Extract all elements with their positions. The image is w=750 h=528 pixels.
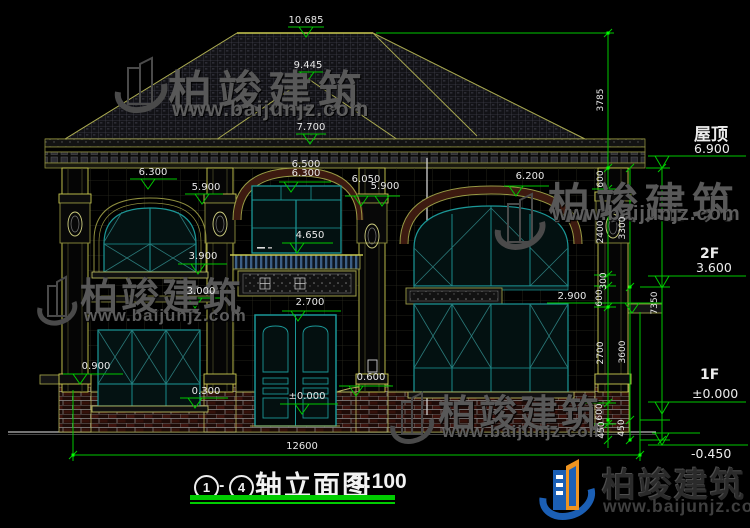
- dim-left-low: 0.300: [192, 386, 221, 397]
- cornice-band: [45, 139, 645, 168]
- watermark-logo-icon: [386, 388, 436, 450]
- dim-balcony: 4.650: [296, 230, 325, 241]
- dim-door-floor: ±0.000: [288, 391, 325, 402]
- dim-door-top: 2.700: [296, 297, 325, 308]
- title-underline-thick: [190, 495, 395, 500]
- chain-600a: 600: [596, 170, 606, 187]
- chain-2700: 2700: [596, 342, 606, 365]
- dim-right-arch: 6.200: [516, 171, 545, 182]
- dim-center-b: 6.300: [292, 168, 321, 179]
- dim-left-sill-1f: 0.900: [82, 361, 111, 372]
- brand-logo-icon: [533, 454, 597, 522]
- watermark-logo-icon: [34, 272, 78, 332]
- dim-left-spring: 5.900: [192, 182, 221, 193]
- dim-center-d: 5.900: [371, 181, 400, 192]
- chain-3300: 3300: [618, 217, 628, 240]
- chain-3600: 3600: [618, 341, 628, 364]
- dim-total-width: 12600: [286, 441, 318, 452]
- entrance-double-door: [250, 315, 340, 426]
- chain-300: 300: [599, 272, 609, 289]
- drawing-scale: 1:100: [353, 470, 407, 494]
- watermark-logo-icon: [108, 52, 170, 118]
- level-1f-label: 1F: [700, 367, 719, 383]
- chain-600c: 600: [595, 403, 605, 420]
- balcony-railing: [233, 255, 360, 269]
- watermark-url-right: www.baijunjz.com: [552, 203, 741, 226]
- watermark-url-left: www.baijunjz.com: [84, 306, 247, 326]
- level-2f-value: 3.600: [696, 260, 732, 275]
- axis-dash: -: [219, 477, 224, 495]
- dim-left-band: 3.000: [187, 286, 216, 297]
- level-1f-value: ±0.000: [692, 386, 738, 401]
- chain-450a: 450: [597, 421, 607, 438]
- title-underline-thin: [190, 502, 395, 504]
- dim-left-arch: 6.300: [139, 167, 168, 178]
- dim-plinth: 0.600: [357, 372, 386, 383]
- brand-url: www.baijunjz.com: [603, 496, 750, 517]
- chain-450b: 450: [617, 419, 627, 436]
- cad-elevation-screenshot: 柏竣建筑 www.baijunjz.com 柏竣建筑 www.baijunjz.…: [0, 0, 750, 528]
- watermark-url-top: www.baijunjz.com: [172, 98, 369, 122]
- watermark-logo-icon: [490, 188, 548, 258]
- watermark-url-bottom: www.baijunjz.com: [442, 422, 605, 442]
- dim-right-band: 2.900: [558, 291, 587, 302]
- dim-ridge: 10.685: [289, 15, 324, 26]
- chain-7350: 7350: [650, 292, 660, 315]
- dim-upper-eave: 7.700: [297, 122, 326, 133]
- level-roof-value: 6.900: [694, 141, 730, 156]
- dim-left-sill-2f: 3.900: [189, 251, 218, 262]
- chain-2400: 2400: [596, 221, 606, 244]
- chain-600b: 600: [595, 289, 605, 306]
- dim-upper-hip: 9.445: [294, 60, 323, 71]
- chain-3785: 3785: [596, 89, 606, 112]
